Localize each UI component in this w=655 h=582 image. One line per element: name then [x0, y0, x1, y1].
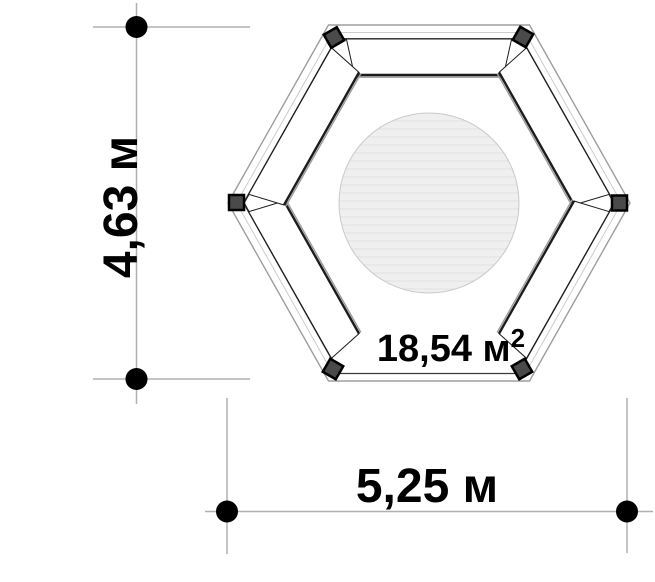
area-label-value: 18,54 м — [377, 328, 511, 370]
corner-post — [229, 195, 244, 210]
horizontal-dimension-label: 5,25 м — [356, 460, 498, 513]
dimension-vertical: 4,63 м — [93, 3, 250, 404]
dimension-endpoint-dot — [126, 368, 148, 390]
area-label: 18,54 м2 — [377, 323, 525, 370]
dimension-endpoint-dot — [616, 501, 638, 523]
corner-post — [513, 27, 533, 47]
bench-top — [346, 39, 511, 77]
vertical-dimension-label: 4,63 м — [95, 136, 148, 278]
corner-post — [512, 359, 532, 379]
bench-outline — [346, 39, 511, 75]
dimension-horizontal: 5,25 м — [205, 398, 653, 554]
corner-post — [324, 27, 344, 47]
center-circle — [339, 113, 519, 293]
dimension-endpoint-dot — [216, 501, 238, 523]
corner-post — [612, 196, 627, 211]
area-label-superscript: 2 — [511, 323, 525, 353]
gazebo-structure: 18,54 м2 — [228, 25, 630, 381]
dimension-endpoint-dot — [126, 16, 148, 38]
gazebo-floor-plan: 4,63 м 5,25 м — [0, 0, 655, 582]
